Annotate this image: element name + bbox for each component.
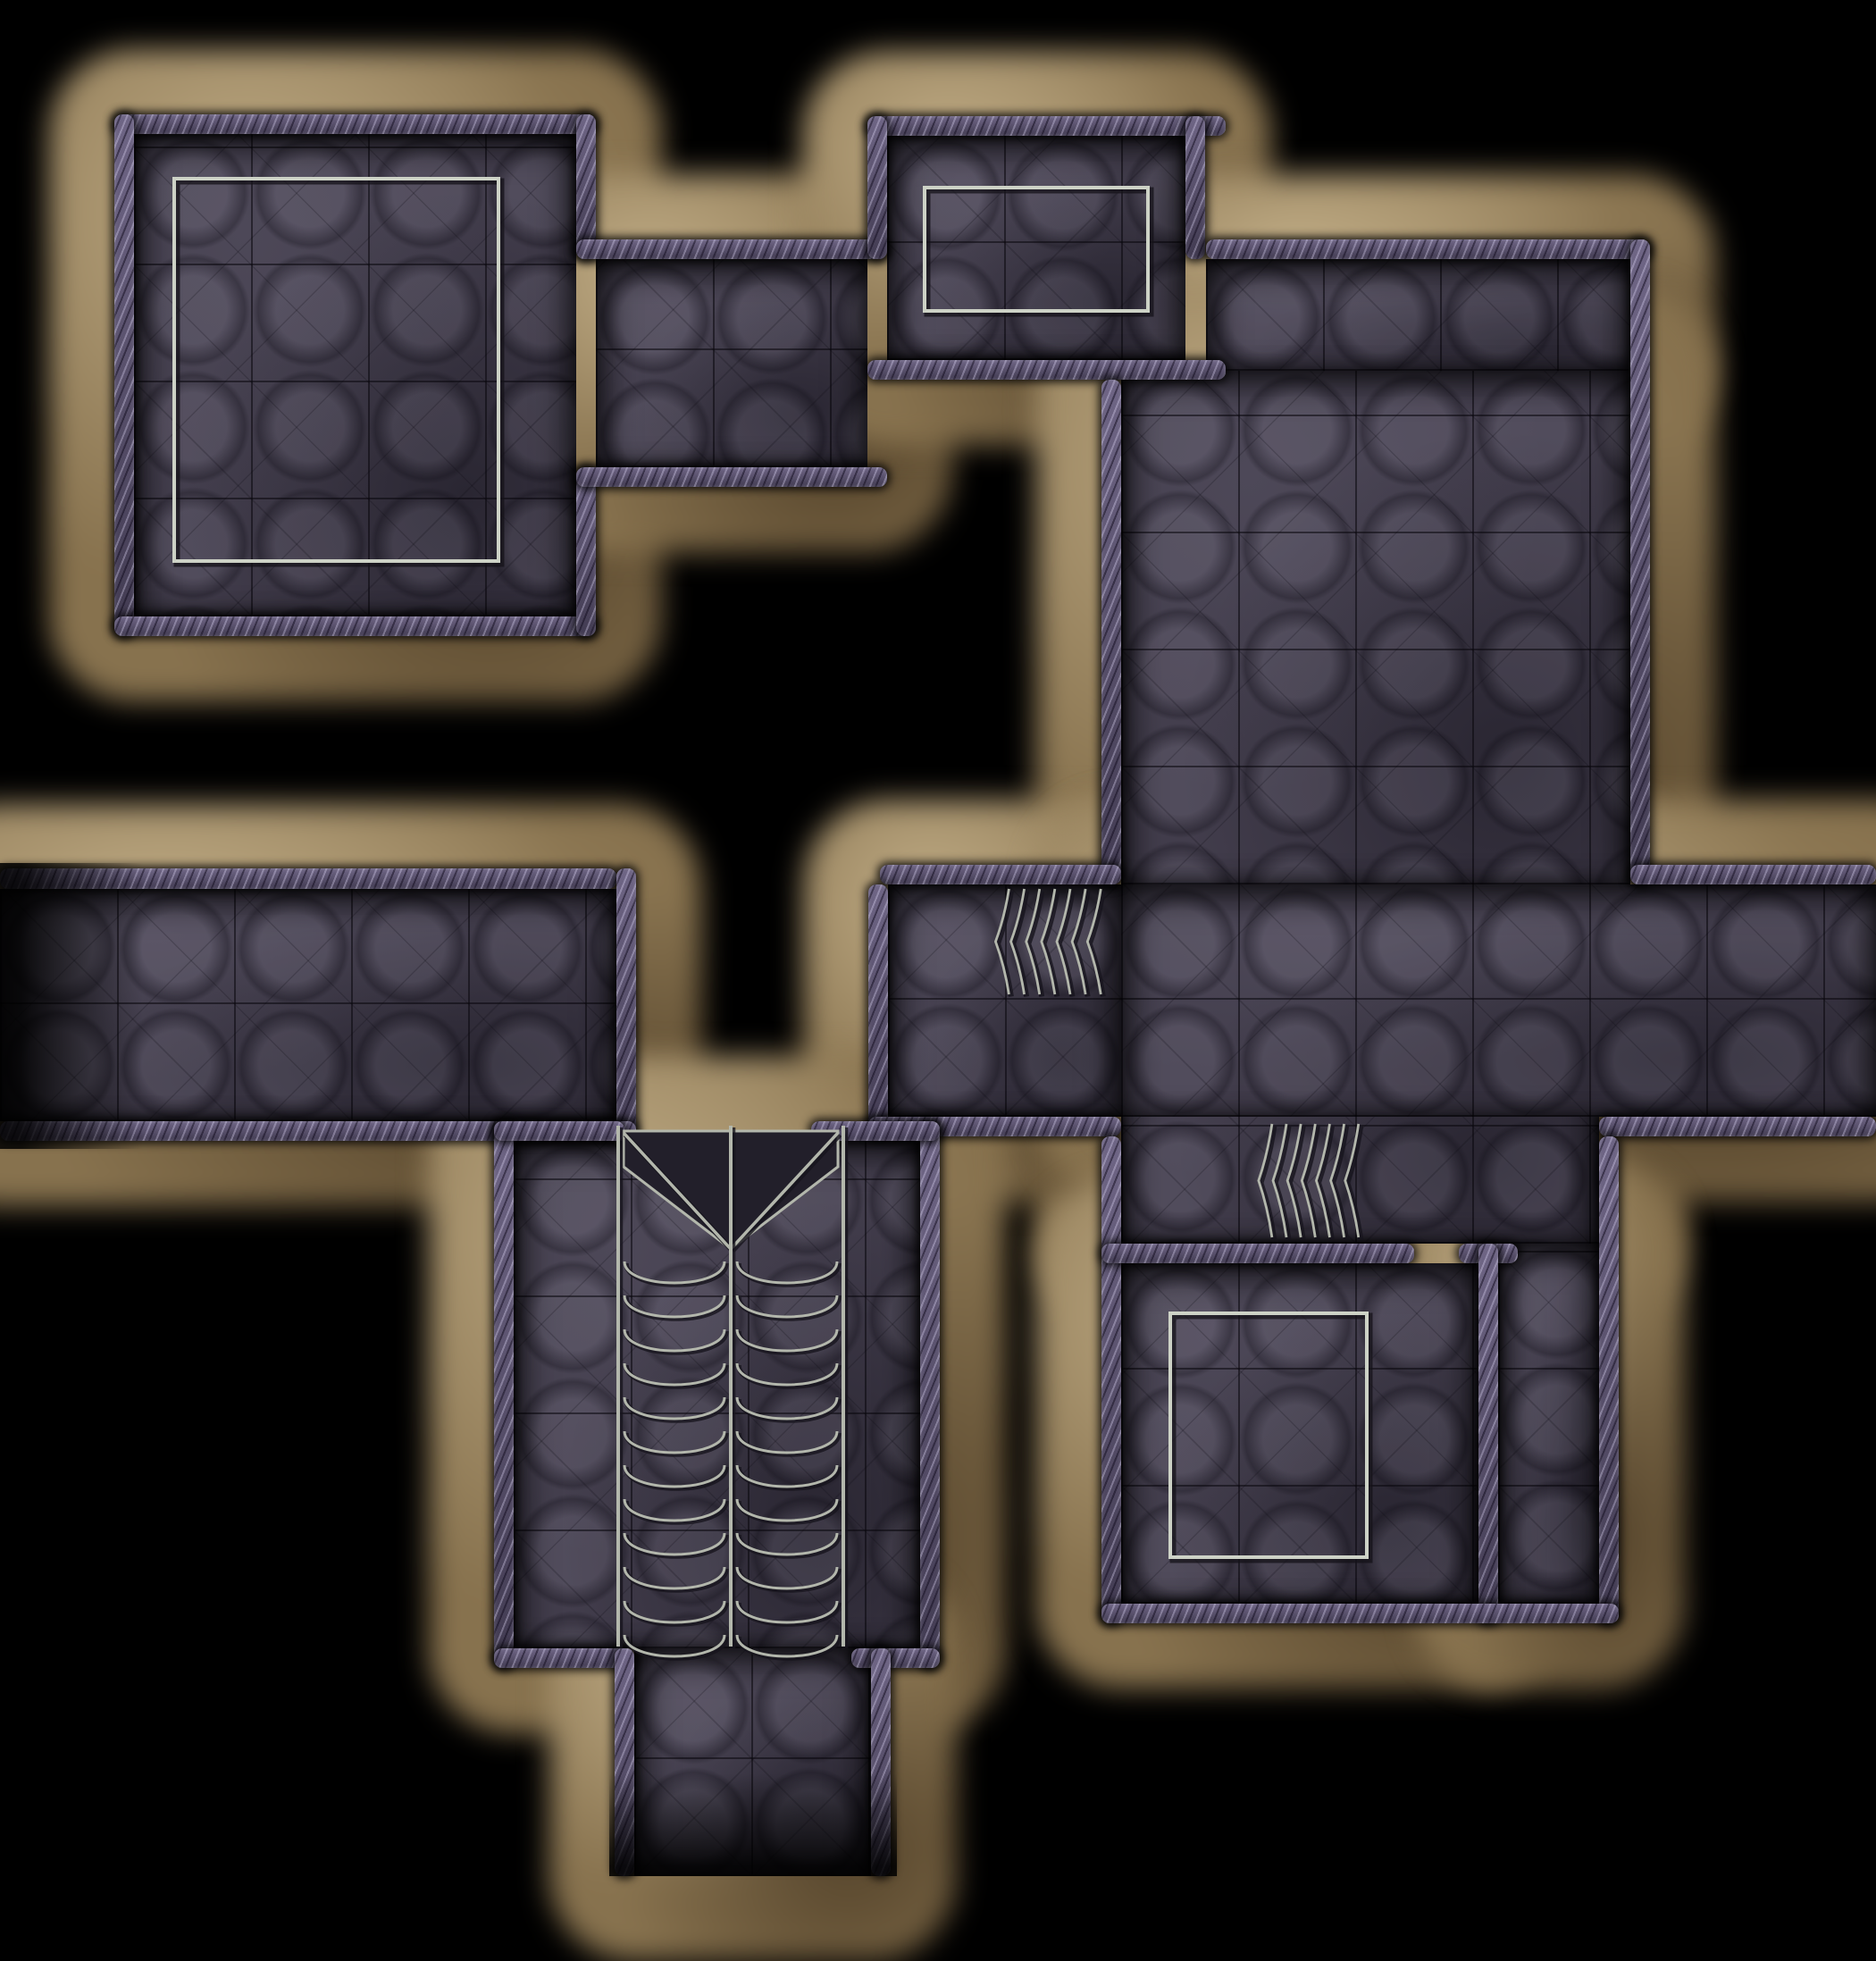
stairs-bottom-right-stairs-down-icon — [1259, 1124, 1361, 1240]
grand-staircase-icon — [618, 1126, 845, 1658]
map-overlay — [0, 0, 1876, 1876]
marked-area-outline-room-top-middle — [925, 188, 1151, 314]
marked-area-outline-room-bottom-right — [1170, 1313, 1369, 1560]
dungeon-map — [0, 0, 1876, 1876]
marked-area-outline-room-top-left — [174, 179, 501, 564]
stairs-east-hall-stairs-down-icon — [995, 889, 1102, 997]
